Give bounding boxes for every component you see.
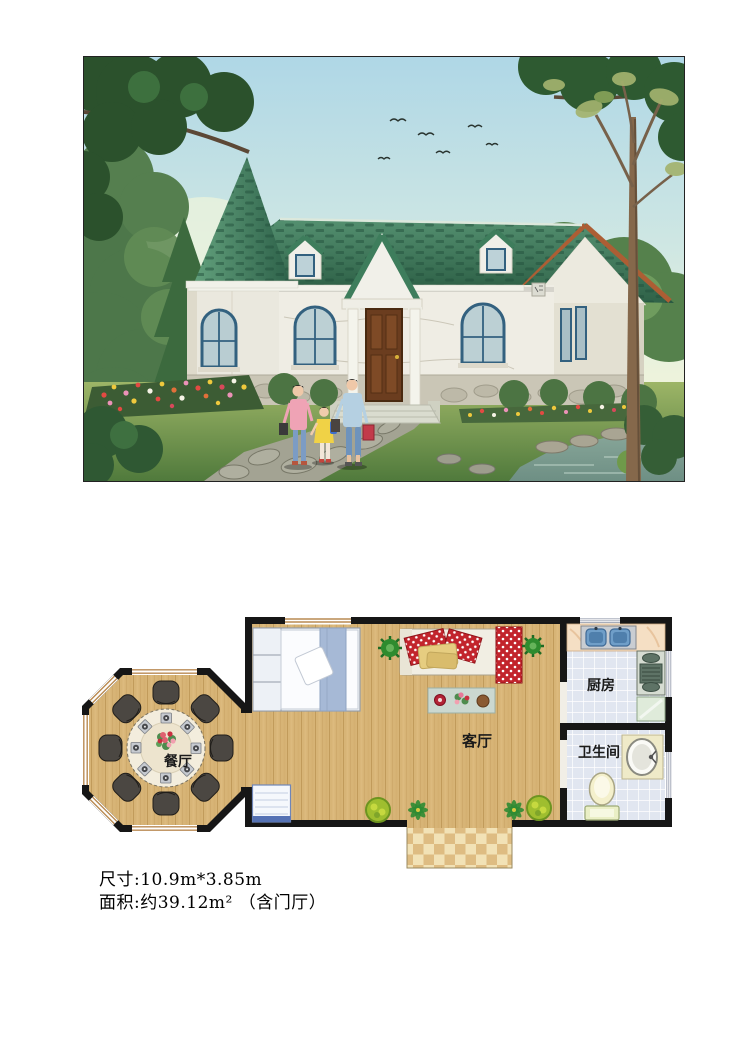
corridor-floor [237,713,255,787]
floor-plant-palm [408,800,428,820]
dimensions-text: 尺寸:10.9m*3.85m [99,869,326,892]
front-door [366,309,402,401]
hall-cabinet [253,785,291,822]
door-opening [407,820,512,828]
bed [253,628,360,711]
side-window [561,309,571,361]
floor-plant-bush [366,798,390,822]
stove [637,651,665,695]
wall-plaque [532,283,545,296]
sofa [400,627,522,683]
caption: 尺寸:10.9m*3.85m 面积:约39.12m² （含门厅） [99,869,326,915]
column [348,309,358,405]
floor-plan-drawing: 餐厅 客厅 厨房 卫生间 [77,613,673,871]
bathroom-sink [622,735,663,779]
potted-plant [522,635,544,657]
arched-window [291,307,339,370]
fridge [637,697,665,721]
arched-window [458,304,508,368]
floor-plant-palm [504,800,524,820]
room-label-living: 客厅 [461,732,492,750]
room-label-kitchen: 厨房 [587,677,615,694]
house-scene [84,57,684,481]
column [410,309,420,405]
dormer-window [487,249,505,270]
area-text: 面积:约39.12m² （含门厅） [99,892,326,915]
side-window [576,307,586,359]
coffee-table [428,688,495,713]
potted-plant [378,636,402,660]
house-rendering-photo [83,56,685,482]
dining-set [99,681,233,815]
bathroom-doorway [560,740,567,788]
dormer-window [296,255,314,276]
floor-plant-bush [527,796,551,820]
entry-porch [407,827,512,868]
floor-plan: 餐厅 客厅 厨房 卫生间 [77,613,673,871]
kitchen-doorway [560,682,567,723]
room-label-dining: 餐厅 [163,753,192,770]
room-label-bathroom: 卫生间 [578,744,620,761]
arched-window [198,310,240,372]
